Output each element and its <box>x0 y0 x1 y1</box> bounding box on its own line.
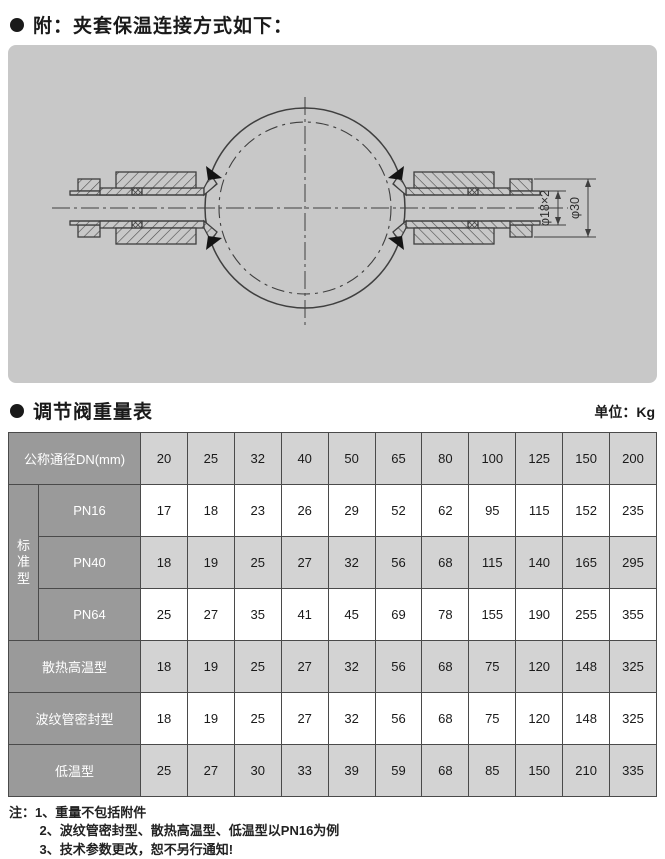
weight-cell: 210 <box>563 745 610 797</box>
weight-section-header: 调节阀重量表 单位：Kg <box>0 383 665 430</box>
dn-header-cell: 65 <box>375 433 422 485</box>
weight-cell: 355 <box>610 589 657 641</box>
weight-cell: 115 <box>469 537 516 589</box>
weight-cell: 17 <box>141 485 188 537</box>
weight-cell: 27 <box>281 641 328 693</box>
weight-cell: 120 <box>516 693 563 745</box>
weight-cell: 56 <box>375 693 422 745</box>
dn-header-cell: 40 <box>281 433 328 485</box>
weight-cell: 32 <box>328 693 375 745</box>
dim-label-pipe: φ18×2 <box>538 190 552 226</box>
table-row: 波纹管密封型1819252732566875120148325 <box>9 693 657 745</box>
weight-cell: 26 <box>281 485 328 537</box>
weight-cell: 115 <box>516 485 563 537</box>
weight-cell: 18 <box>141 641 188 693</box>
table-header-row: 公称通径DN(mm)20253240506580100125150200 <box>9 433 657 485</box>
weight-cell: 32 <box>328 537 375 589</box>
bullet-icon <box>10 404 24 418</box>
weight-cell: 27 <box>281 693 328 745</box>
weight-cell: 25 <box>234 641 281 693</box>
weight-cell: 59 <box>375 745 422 797</box>
weight-cell: 325 <box>610 693 657 745</box>
weight-cell: 27 <box>281 537 328 589</box>
weight-cell: 62 <box>422 485 469 537</box>
weight-cell: 56 <box>375 537 422 589</box>
dn-header-cell: 20 <box>141 433 188 485</box>
dn-header-cell: 200 <box>610 433 657 485</box>
footnote-prefix: 注： <box>9 805 35 820</box>
row-label-cell: 低温型 <box>9 745 141 797</box>
weight-cell: 75 <box>469 641 516 693</box>
weight-cell: 78 <box>422 589 469 641</box>
weight-cell: 75 <box>469 693 516 745</box>
dn-header-cell: 50 <box>328 433 375 485</box>
weight-cell: 52 <box>375 485 422 537</box>
weight-cell: 18 <box>141 693 188 745</box>
jacket-insulation-drawing-panel: φ18×2 φ30 <box>8 45 657 383</box>
weight-cell: 68 <box>422 693 469 745</box>
weight-cell: 18 <box>141 537 188 589</box>
bullet-icon <box>10 18 24 32</box>
dn-header-cell: 150 <box>563 433 610 485</box>
weight-cell: 148 <box>563 641 610 693</box>
weight-cell: 35 <box>234 589 281 641</box>
weight-cell: 18 <box>187 485 234 537</box>
attachment-section-header: 附：夹套保温连接方式如下： <box>0 0 665 45</box>
row-label-cell: PN64 <box>39 589 141 641</box>
footnote-item: 1、重量不包括附件 <box>35 805 146 820</box>
dim-arrow <box>555 191 561 199</box>
dn-header-cell: 32 <box>234 433 281 485</box>
dim-arrow <box>585 179 591 187</box>
weight-table-head: 公称通径DN(mm)20253240506580100125150200 <box>9 433 657 485</box>
footnote-line: 注：1、重量不包括附件 <box>9 804 665 822</box>
dn-header-cell: 25 <box>187 433 234 485</box>
jacket-connection-drawing: φ18×2 φ30 <box>8 45 657 383</box>
corner-header-cell: 公称通径DN(mm) <box>9 433 141 485</box>
weight-cell: 140 <box>516 537 563 589</box>
weight-cell: 235 <box>610 485 657 537</box>
weight-cell: 335 <box>610 745 657 797</box>
weight-cell: 255 <box>563 589 610 641</box>
table-row: 标 准 型PN161718232629526295115152235 <box>9 485 657 537</box>
footnote-item: 2、波纹管密封型、散热高温型、低温型以PN16为例 <box>40 823 340 838</box>
dn-header-cell: 100 <box>469 433 516 485</box>
weight-cell: 190 <box>516 589 563 641</box>
weight-cell: 148 <box>563 693 610 745</box>
group-label-cell: 标 准 型 <box>9 485 39 641</box>
weight-cell: 39 <box>328 745 375 797</box>
weight-cell: 25 <box>234 693 281 745</box>
dim-label-jacket: φ30 <box>568 197 582 219</box>
weight-cell: 95 <box>469 485 516 537</box>
unit-label: 单位：Kg <box>594 402 655 424</box>
weight-cell: 325 <box>610 641 657 693</box>
weight-table-body: 标 准 型PN161718232629526295115152235PN4018… <box>9 485 657 797</box>
weight-cell: 30 <box>234 745 281 797</box>
weight-cell: 120 <box>516 641 563 693</box>
weight-cell: 69 <box>375 589 422 641</box>
weight-cell: 19 <box>187 641 234 693</box>
weight-cell: 19 <box>187 693 234 745</box>
row-label-cell: 波纹管密封型 <box>9 693 141 745</box>
attachment-title: 附：夹套保温连接方式如下： <box>33 11 293 38</box>
footnotes: 注：1、重量不包括附件 2、波纹管密封型、散热高温型、低温型以PN16为例 3、… <box>9 804 665 859</box>
weight-cell: 68 <box>422 537 469 589</box>
footnote-line: 2、波纹管密封型、散热高温型、低温型以PN16为例 <box>9 822 665 840</box>
weight-cell: 45 <box>328 589 375 641</box>
weight-cell: 68 <box>422 745 469 797</box>
table-row: PN4018192527325668115140165295 <box>9 537 657 589</box>
weight-cell: 85 <box>469 745 516 797</box>
table-row: 低温型2527303339596885150210335 <box>9 745 657 797</box>
dn-header-cell: 80 <box>422 433 469 485</box>
weight-cell: 155 <box>469 589 516 641</box>
weight-cell: 150 <box>516 745 563 797</box>
weight-cell: 19 <box>187 537 234 589</box>
weight-cell: 32 <box>328 641 375 693</box>
weight-cell: 25 <box>141 745 188 797</box>
weight-cell: 152 <box>563 485 610 537</box>
valve-weight-table: 公称通径DN(mm)20253240506580100125150200 标 准… <box>8 432 657 797</box>
weight-cell: 41 <box>281 589 328 641</box>
weight-cell: 56 <box>375 641 422 693</box>
weight-cell: 33 <box>281 745 328 797</box>
footnote-item: 3、技术参数更改，恕不另行通知! <box>40 842 234 857</box>
weight-cell: 23 <box>234 485 281 537</box>
table-row: 散热高温型1819252732566875120148325 <box>9 641 657 693</box>
weight-cell: 27 <box>187 589 234 641</box>
dim-arrow <box>555 217 561 225</box>
dim-arrow <box>585 229 591 237</box>
weight-cell: 29 <box>328 485 375 537</box>
weight-table-title: 调节阀重量表 <box>33 397 153 424</box>
weight-cell: 295 <box>610 537 657 589</box>
row-label-cell: PN40 <box>39 537 141 589</box>
row-label-cell: 散热高温型 <box>9 641 141 693</box>
weight-cell: 25 <box>141 589 188 641</box>
dn-header-cell: 125 <box>516 433 563 485</box>
weight-cell: 165 <box>563 537 610 589</box>
weight-cell: 68 <box>422 641 469 693</box>
weight-cell: 25 <box>234 537 281 589</box>
row-label-cell: PN16 <box>39 485 141 537</box>
weight-cell: 27 <box>187 745 234 797</box>
table-row: PN6425273541456978155190255355 <box>9 589 657 641</box>
